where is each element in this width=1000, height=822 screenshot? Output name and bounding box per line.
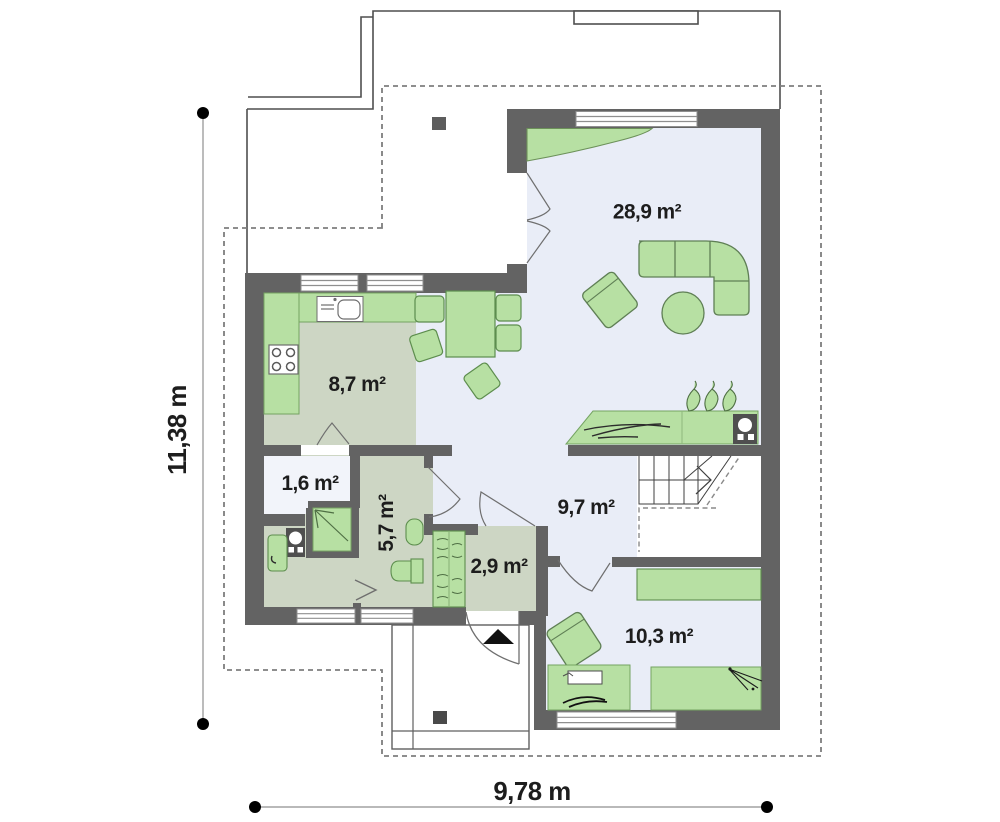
svg-text:1,6 m²: 1,6 m² <box>281 472 339 495</box>
svg-text:8,7 m²: 8,7 m² <box>328 373 386 396</box>
svg-text:10,3 m²: 10,3 m² <box>625 625 694 648</box>
svg-text:9,7 m²: 9,7 m² <box>557 496 615 519</box>
svg-text:5,7 m²: 5,7 m² <box>375 494 398 552</box>
svg-text:11,38 m: 11,38 m <box>164 385 192 475</box>
svg-text:2,9 m²: 2,9 m² <box>470 555 528 578</box>
svg-text:9,78 m: 9,78 m <box>493 778 570 806</box>
svg-text:28,9 m²: 28,9 m² <box>613 201 682 224</box>
